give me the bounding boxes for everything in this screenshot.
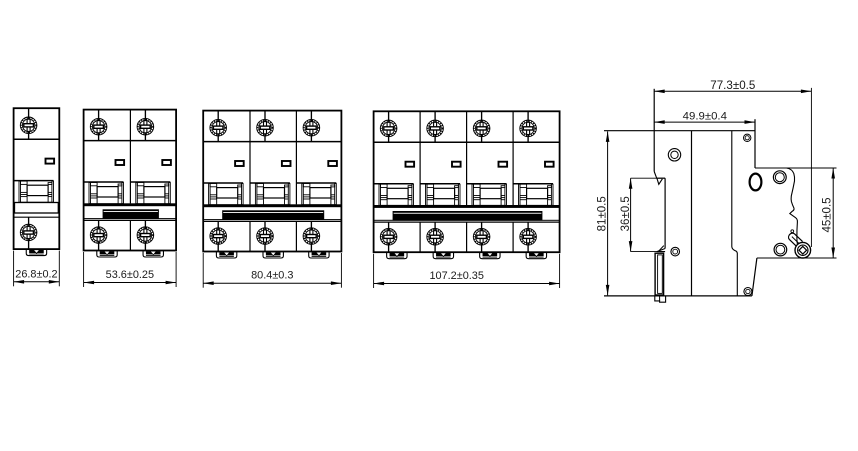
svg-text:26.8±0.2: 26.8±0.2 <box>15 268 57 280</box>
svg-text:107.2±0.35: 107.2±0.35 <box>429 270 483 282</box>
svg-text:81±0.5: 81±0.5 <box>597 196 609 231</box>
svg-text:77.3±0.5: 77.3±0.5 <box>710 79 755 92</box>
svg-text:36±0.5: 36±0.5 <box>620 196 632 231</box>
svg-text:80.4±0.3: 80.4±0.3 <box>251 270 293 282</box>
svg-text:53.6±0.25: 53.6±0.25 <box>106 269 154 281</box>
svg-text:45±0.5: 45±0.5 <box>821 197 833 232</box>
svg-text:49.9±0.4: 49.9±0.4 <box>683 111 727 123</box>
